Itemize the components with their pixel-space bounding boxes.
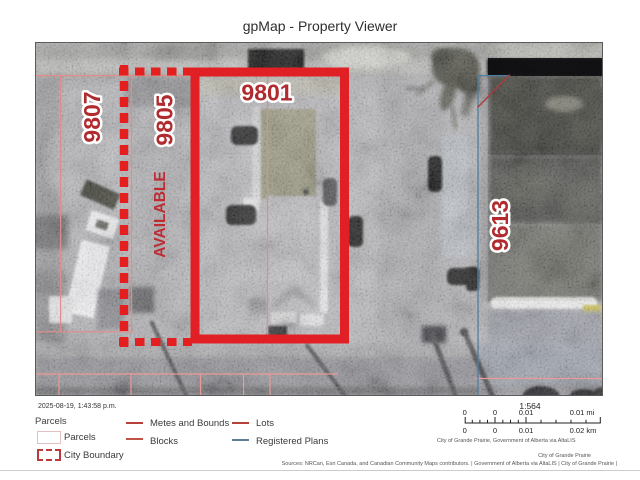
svg-text:0: 0 <box>493 408 497 417</box>
svg-text:9805: 9805 <box>152 94 178 145</box>
svg-text:0.01: 0.01 <box>519 408 534 417</box>
svg-text:9801: 9801 <box>241 80 292 106</box>
svg-text:0: 0 <box>463 426 467 435</box>
svg-text:0: 0 <box>493 426 497 435</box>
svg-text:0.02 km: 0.02 km <box>570 426 597 435</box>
svg-text:0: 0 <box>463 408 467 417</box>
svg-text:0.01: 0.01 <box>519 426 534 435</box>
svg-text:9807: 9807 <box>79 91 105 142</box>
svg-text:9613: 9613 <box>487 200 513 251</box>
svg-text:AVAILABLE: AVAILABLE <box>152 171 169 257</box>
svg-text:0.01 mi: 0.01 mi <box>570 408 595 417</box>
